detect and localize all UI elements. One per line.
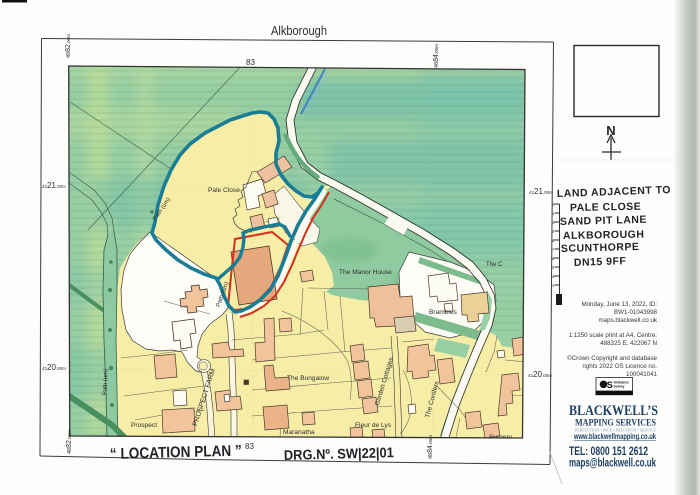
svg-text:Pale Close: Pale Close — [208, 187, 240, 194]
svg-text:SCUNTHORPE: SCUNTHORPE — [561, 241, 640, 255]
svg-text:www.blackwellmapping.co.uk: www.blackwellmapping.co.uk — [573, 432, 656, 441]
svg-text:1:1250 scale print at A4, Cent: 1:1250 scale print at A4, Centre: — [569, 332, 658, 339]
svg-text:The Bungalow: The Bungalow — [287, 375, 329, 382]
svg-text:PALE CLOSE: PALE CLOSE — [570, 201, 642, 214]
svg-text:Maranatha: Maranatha — [283, 429, 315, 436]
svg-text:Monday, June 13, 2022, ID:: Monday, June 13, 2022, ID: — [581, 301, 657, 308]
svg-text:Alkborough: Alkborough — [271, 24, 327, 38]
svg-text:Fleur de Lys: Fleur de Lys — [355, 422, 392, 429]
svg-text:©Crown Copyright and database: ©Crown Copyright and database — [567, 355, 657, 362]
svg-text:TEL: 0800 151 2612: TEL: 0800 151 2612 — [569, 446, 648, 458]
svg-text:S: S — [607, 380, 613, 390]
svg-text:Prospect: Prospect — [131, 422, 157, 429]
svg-text:Brambles: Brambles — [429, 309, 458, 316]
svg-text:BW1-01043998: BW1-01043998 — [614, 309, 658, 316]
svg-text:BLACKWELL’S: BLACKWELL’S — [569, 403, 658, 419]
svg-text:4884.00m: 4884.00m — [427, 435, 434, 459]
svg-text:DRG.Nº. SW|22|01: DRG.Nº. SW|22|01 — [284, 444, 395, 463]
svg-text:4882.00m: 4882.00m — [65, 34, 72, 58]
svg-text:Survey: Survey — [614, 385, 625, 389]
svg-text:83: 83 — [246, 58, 255, 67]
svg-text:DN15 9FF: DN15 9FF — [574, 255, 627, 269]
svg-text:4882.00m: 4882.00m — [66, 430, 73, 454]
svg-text:N: N — [606, 123, 615, 138]
svg-text:83: 83 — [245, 442, 254, 451]
svg-text:maps.blackwell.co.uk: maps.blackwell.co.uk — [599, 317, 658, 324]
svg-text:SAND PIT LANE: SAND PIT LANE — [560, 214, 647, 228]
svg-text:Path (um): Path (um) — [103, 369, 110, 396]
svg-text:“ LOCATION PLAN ”: “ LOCATION PLAN ” — [110, 443, 242, 463]
svg-text:rights 2022 OS Licence no.: rights 2022 OS Licence no. — [582, 363, 657, 370]
svg-text:4884.00m: 4884.00m — [433, 44, 440, 68]
svg-text:The Manor House: The Manor House — [339, 269, 392, 276]
svg-text:488325 E, 422067 N: 488325 E, 422067 N — [600, 340, 657, 347]
svg-text:maps@blackwell.co.uk: maps@blackwell.co.uk — [569, 458, 656, 470]
svg-text:The C: The C — [486, 262, 503, 268]
svg-text:100041041: 100041041 — [626, 371, 658, 378]
svg-text:ALKBOROUGH: ALKBOROUGH — [563, 229, 645, 242]
